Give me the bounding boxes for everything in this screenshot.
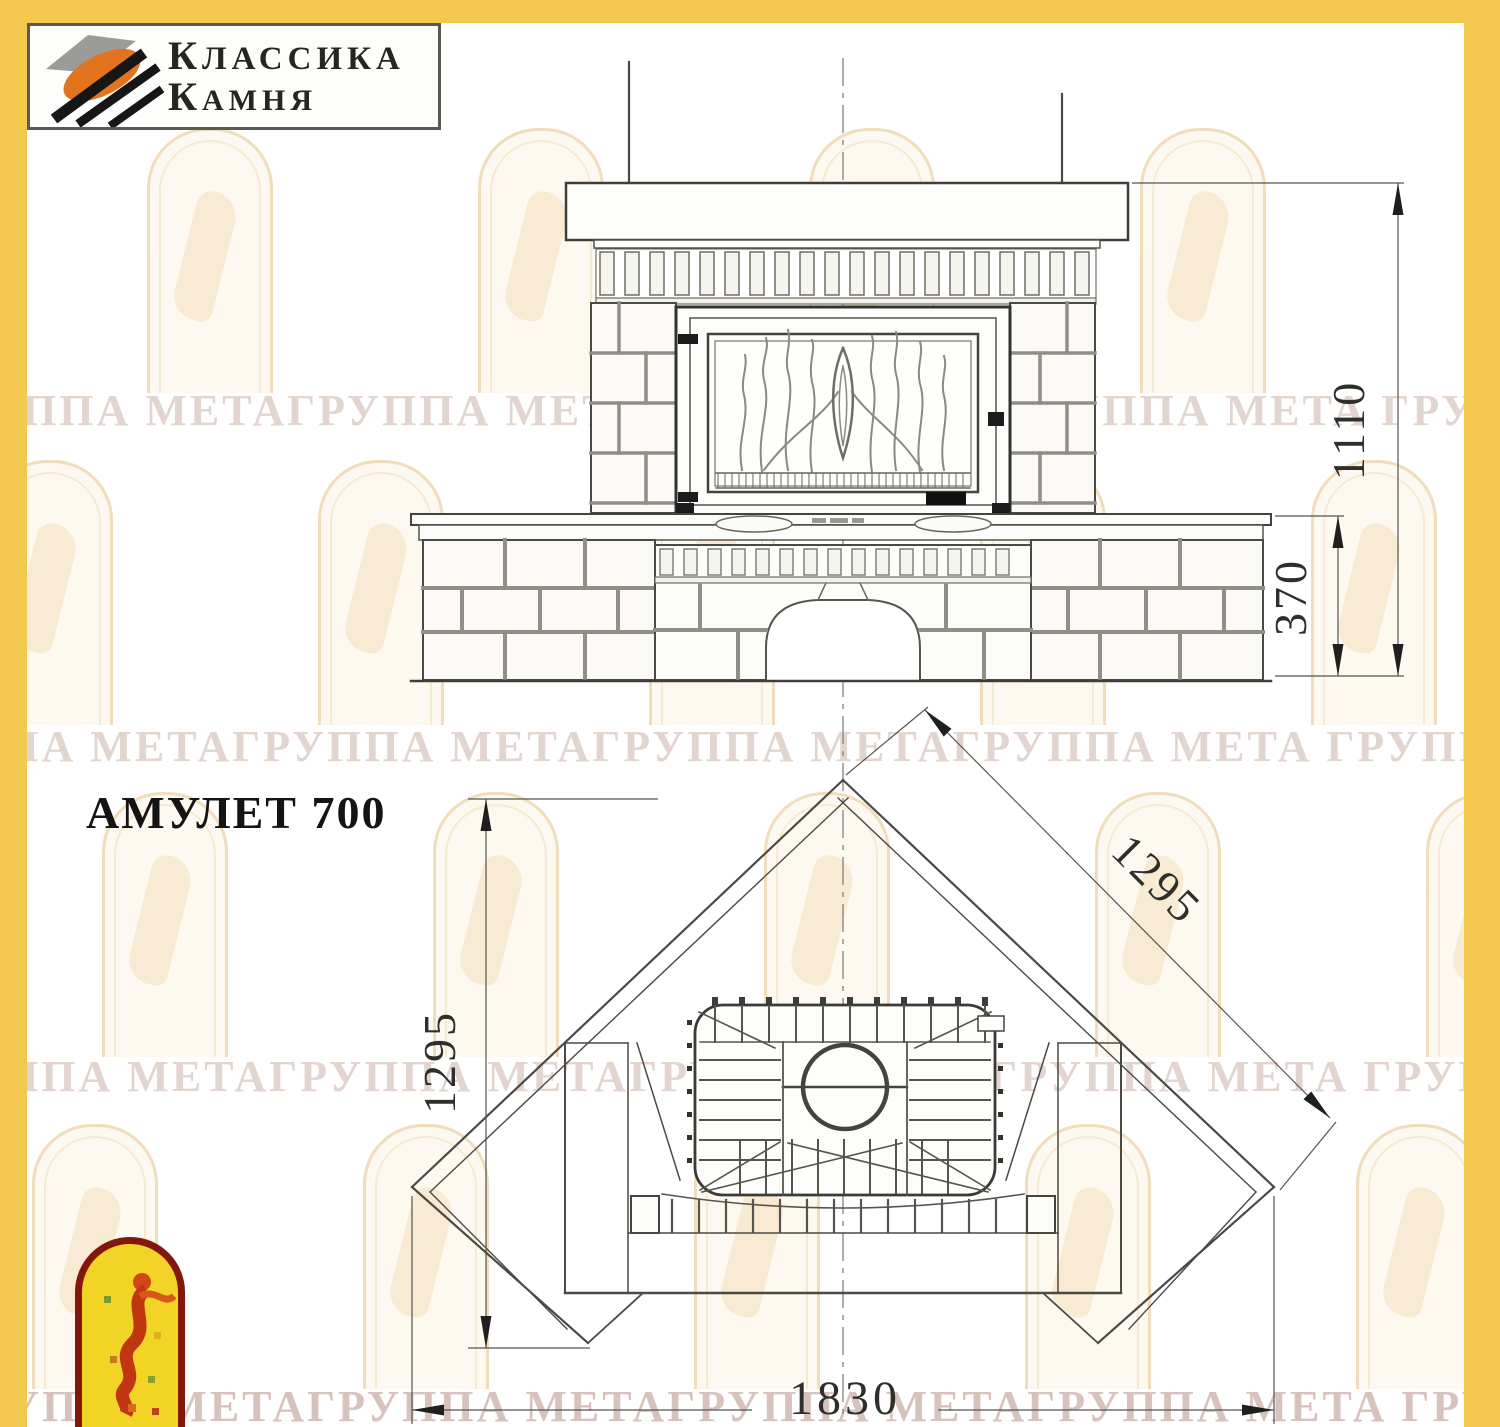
dim-total-height-label: 1110	[1323, 380, 1374, 481]
dimension-arrow	[481, 1316, 492, 1348]
dentil-brick	[775, 252, 789, 295]
dentil-bg	[596, 249, 1096, 298]
dentil-brick	[675, 252, 689, 295]
dentil-brick	[800, 252, 814, 295]
insert-edge-dot	[687, 1020, 692, 1025]
insert-tooth	[982, 997, 988, 1006]
insert-tooth	[820, 997, 826, 1006]
door-hinge-top	[678, 334, 698, 344]
figure-body	[122, 1290, 146, 1414]
dentil-brick	[650, 252, 664, 295]
door-handle	[926, 492, 966, 505]
dim-front-width-label: 1830	[789, 1372, 901, 1425]
insert-foot-left	[716, 516, 792, 532]
dentil-brick	[900, 252, 914, 295]
column-body	[1010, 303, 1095, 513]
door-hinge-bottom	[678, 492, 698, 502]
dimension-arrow	[1333, 644, 1344, 676]
dentil-brick	[852, 549, 865, 575]
door-latch	[988, 412, 1004, 426]
insert-edge-dot	[687, 1112, 692, 1117]
dentil-brick	[924, 549, 937, 575]
insert-tooth	[901, 997, 907, 1006]
dentil-brick	[948, 549, 961, 575]
dentil-brick	[850, 252, 864, 295]
insert-tooth	[874, 997, 880, 1006]
dentil-brick	[684, 549, 697, 575]
column-body	[591, 303, 676, 513]
insert-edge-dot	[687, 1089, 692, 1094]
logo-text: КЛАССИКА КАМНЯ	[168, 36, 405, 118]
hearth-slab-bottom	[419, 525, 1263, 540]
band-end-post-right	[1027, 1196, 1055, 1233]
dentil-brick	[876, 549, 889, 575]
insert-outlet-box	[978, 1016, 1004, 1031]
insert-edge-dot	[687, 1043, 692, 1048]
insert-foot-right	[915, 516, 991, 532]
dentil-brick	[1050, 252, 1064, 295]
insert-edge-dot	[998, 1112, 1003, 1117]
dentil-brick	[1075, 252, 1089, 295]
model-title: АМУЛЕТ 700	[86, 786, 386, 839]
insert-tooth	[766, 997, 772, 1006]
dentil-brick	[925, 252, 939, 295]
insert-edge-dot	[687, 1066, 692, 1071]
dim-left-depth-label: 1295	[414, 1010, 465, 1114]
dentil-rail	[655, 577, 1031, 583]
dentil-brick	[780, 549, 793, 575]
dentil-brick	[975, 252, 989, 295]
dentil-brick	[708, 549, 721, 575]
dentil-brick	[1025, 252, 1039, 295]
extension-line	[1280, 1122, 1336, 1190]
dentil-brick	[875, 252, 889, 295]
dentil-brick	[725, 252, 739, 295]
dentil-brick	[804, 549, 817, 575]
insert-edge-dot	[687, 1135, 692, 1140]
insert-edge-dot	[998, 1089, 1003, 1094]
dimension-arrow	[921, 706, 951, 736]
dentil-brick	[1000, 252, 1014, 295]
insert-tooth	[847, 997, 853, 1006]
insert-tooth	[955, 997, 961, 1006]
hearth-brick-band	[672, 1200, 996, 1232]
dentil-brick	[600, 252, 614, 295]
insert-tooth	[928, 997, 934, 1006]
page: ГРУППА МЕТАГРУППА МЕТАГРУППА МЕТАГРУППА …	[0, 0, 1500, 1427]
insert-edge-dot	[998, 1135, 1003, 1140]
insert-tooth	[793, 997, 799, 1006]
company-logo: КЛАССИКА КАМНЯ	[27, 23, 441, 130]
insert-edge-dot	[687, 1158, 692, 1163]
fireplace-technical-drawing: 1110 370	[0, 0, 1500, 1427]
dentil-brick	[825, 252, 839, 295]
dimension-arrow	[1242, 1405, 1274, 1416]
band-end-post-left	[631, 1196, 659, 1233]
dimension-arrow	[1393, 644, 1404, 676]
insert-edge-dot	[998, 1158, 1003, 1163]
dentil-brick	[950, 252, 964, 295]
dentil-brick	[900, 549, 913, 575]
front-elevation-view	[411, 62, 1271, 681]
logo-line2: КАМНЯ	[168, 77, 405, 118]
dimension-arrow	[1333, 516, 1344, 548]
wood-niche-arch	[766, 600, 920, 680]
dim-bench-height-label: 370	[1265, 558, 1316, 636]
shelf-lip	[594, 240, 1100, 248]
door-foot-left	[676, 503, 694, 514]
dimension-arrow	[1303, 1091, 1333, 1121]
dentil-brick	[996, 549, 1009, 575]
insert-tooth	[712, 997, 718, 1006]
dimension-arrow	[1393, 183, 1404, 215]
dentil-brick	[700, 252, 714, 295]
dimension-arrow	[412, 1405, 444, 1416]
dentil-brick	[828, 549, 841, 575]
meta-arch-logo	[75, 1237, 185, 1427]
door-foot-right	[992, 503, 1010, 514]
insert-tooth	[739, 997, 745, 1006]
arch-logo-figure	[82, 1244, 185, 1427]
dimension-arrow	[481, 799, 492, 831]
dentil-brick	[972, 549, 985, 575]
dentil-brick	[732, 549, 745, 575]
insert-nameplate	[812, 518, 864, 523]
extension-line	[846, 707, 928, 775]
logo-line1: КЛАССИКА	[168, 36, 405, 77]
firebox-glass	[708, 334, 978, 492]
insert-edge-dot	[998, 1043, 1003, 1048]
dim-right-depth-label: 1295	[1102, 824, 1212, 934]
mantel-shelf	[566, 183, 1128, 240]
dentil-brick	[756, 549, 769, 575]
stone-logo-icon	[36, 27, 164, 127]
dentil-brick	[660, 549, 673, 575]
dentil-brick	[750, 252, 764, 295]
dentil-brick	[625, 252, 639, 295]
insert-edge-dot	[998, 1066, 1003, 1071]
dentil-course-upper	[596, 249, 1096, 304]
